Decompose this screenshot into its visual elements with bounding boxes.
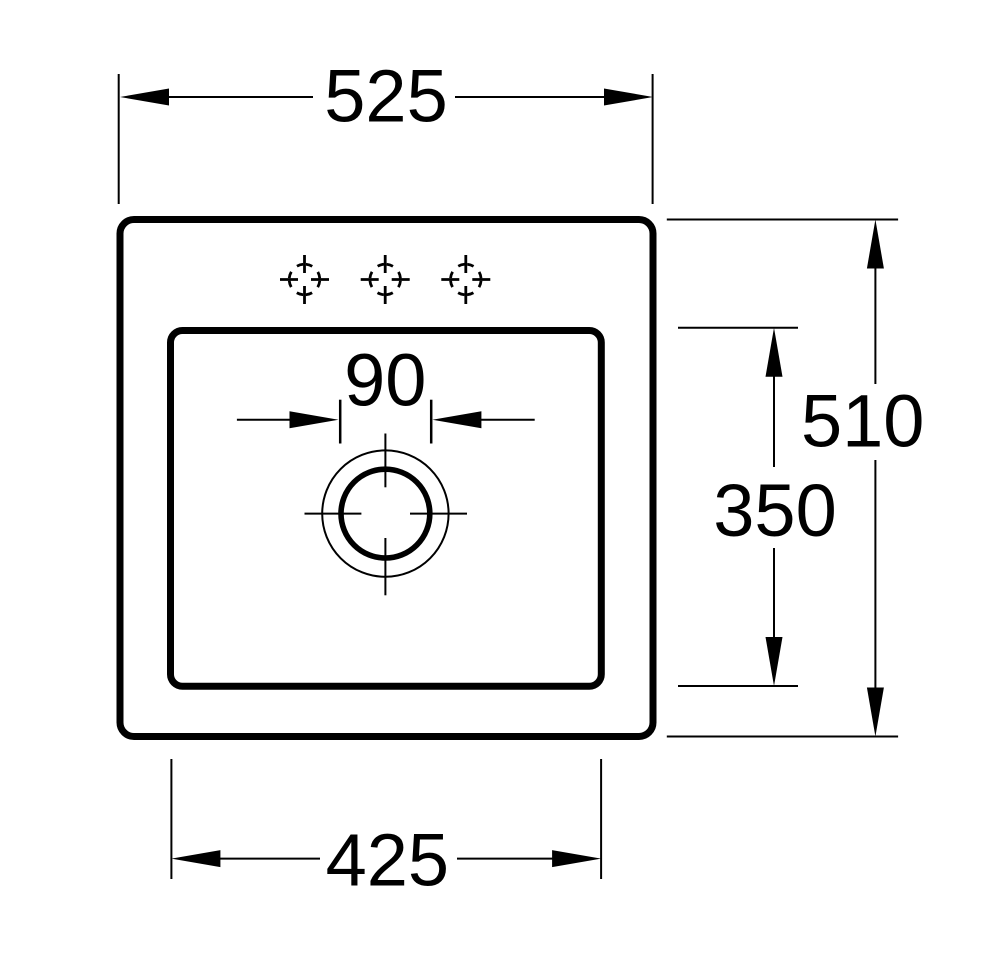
- svg-text:525: 525: [324, 55, 447, 138]
- svg-text:425: 425: [326, 819, 449, 902]
- svg-text:510: 510: [801, 380, 924, 463]
- svg-text:90: 90: [344, 339, 426, 422]
- svg-text:350: 350: [713, 469, 836, 552]
